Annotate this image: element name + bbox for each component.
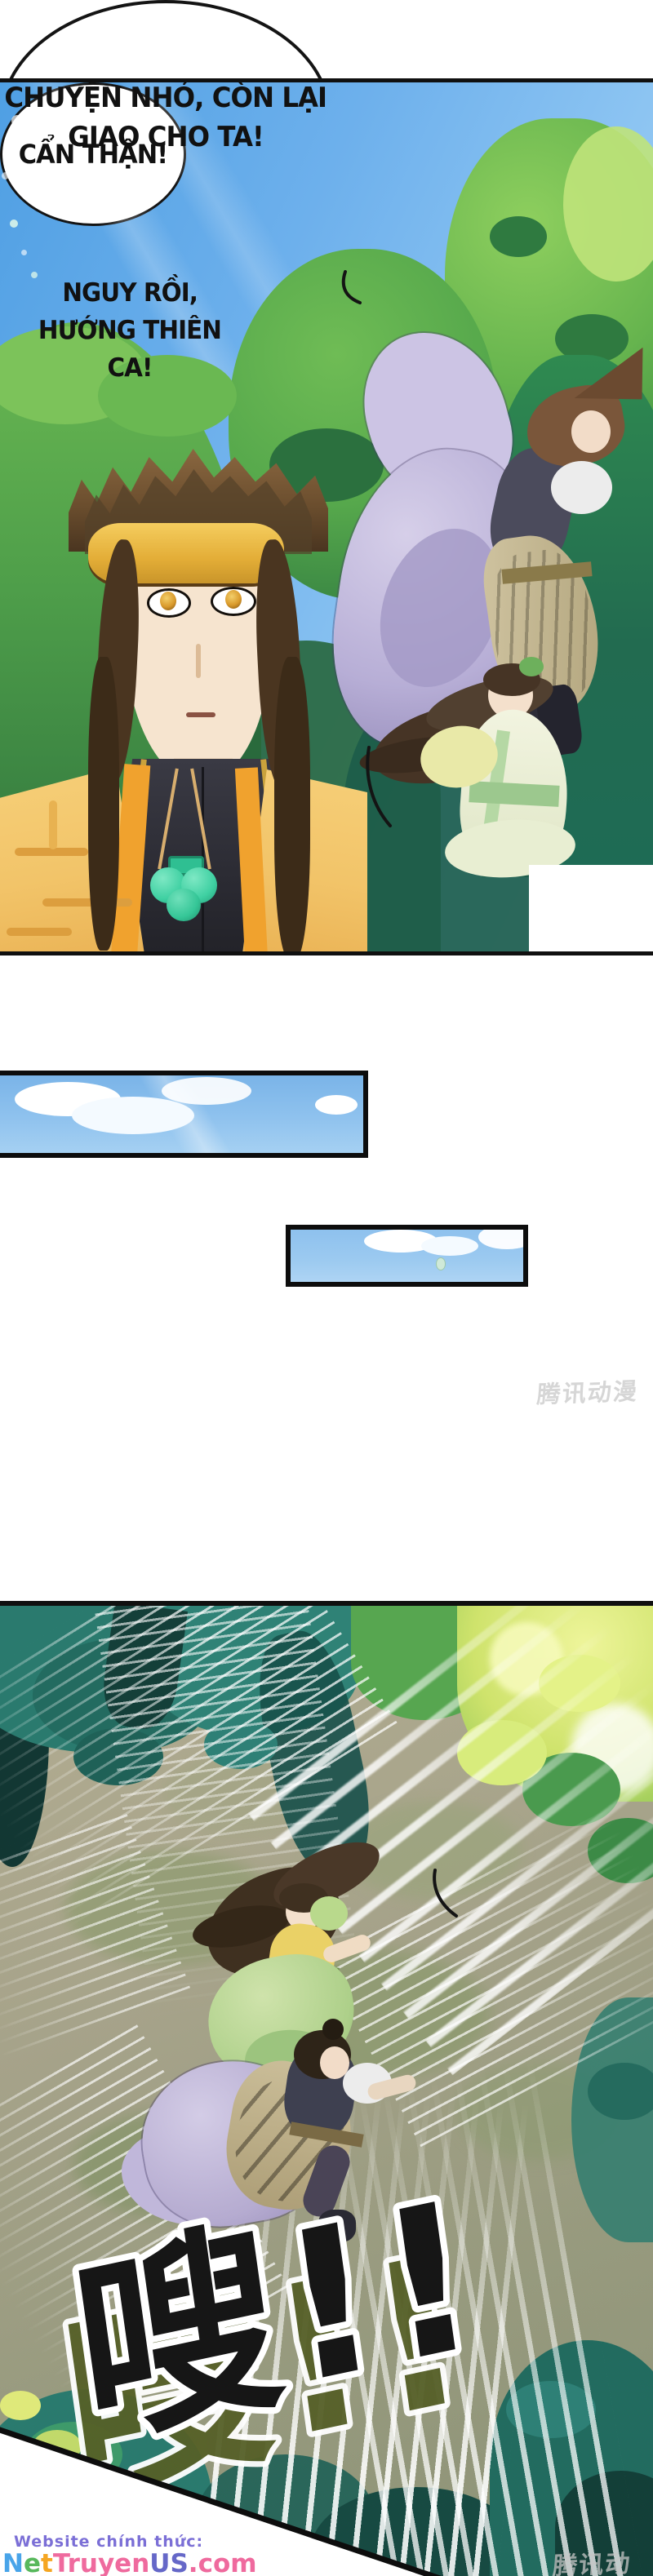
footer-site-letter: e — [114, 2549, 131, 2576]
footer-label: Website chính thức: — [14, 2533, 203, 2551]
green-woman-hairpiece — [519, 657, 544, 676]
cloud — [315, 1095, 358, 1115]
footer-site-letter: n — [131, 2549, 149, 2576]
hero-robe-pattern — [42, 898, 132, 907]
footer-site-letter: e — [24, 2549, 41, 2576]
sparkle — [2, 172, 9, 180]
hero-nose — [196, 644, 201, 678]
sky-inset-panel-2 — [286, 1225, 528, 1287]
footer-site-letter: r — [68, 2549, 80, 2576]
hero-iris-left — [160, 592, 176, 610]
hero-robe-pattern — [49, 800, 57, 849]
footer-site-letter: u — [80, 2549, 98, 2576]
footer-site-letter: U — [149, 2549, 170, 2576]
cloud — [478, 1225, 528, 1249]
footer-site-letter: N — [2, 2549, 24, 2576]
footer-site-letter: m — [230, 2549, 256, 2576]
footer-site-letter: t — [41, 2549, 53, 2576]
speech-bubble-3-line2: HƯỚNG THIÊN — [38, 312, 221, 349]
tencent-watermark: 腾讯动漫 — [535, 1372, 639, 1410]
speech-bubble-1-tail — [331, 270, 380, 311]
cloud — [421, 1236, 478, 1256]
footer-site-letter: c — [198, 2549, 213, 2576]
jade-pendant — [167, 889, 201, 921]
sparkle — [10, 219, 18, 228]
sparkle — [21, 250, 27, 255]
hero-back-hair-right — [274, 657, 310, 955]
hero-back-hair-left — [88, 657, 119, 951]
panel-white-cut — [529, 865, 653, 955]
hero-iris-right — [225, 590, 242, 609]
footer-site-letter: o — [213, 2549, 230, 2576]
footer-site-letter: . — [189, 2549, 198, 2576]
speech-bubble-3-line3: CA! — [107, 349, 152, 387]
speech-bubble-2-tail — [351, 744, 408, 830]
footer-site-letter: S — [170, 2549, 188, 2576]
footer-site-link[interactable]: NetTruyenUS.com — [2, 2549, 257, 2576]
speech-bubble-3-tail — [420, 1867, 469, 1919]
speech-bubble-2-line1: CHUYỆN NHỎ, CÒN LẠI — [5, 78, 327, 117]
cloud — [72, 1097, 194, 1134]
hero-mouth — [186, 712, 215, 717]
speech-bubble-3-line1: NGUY RỒI, — [62, 274, 198, 312]
running-woman-hood — [310, 1896, 348, 1931]
tencent-watermark-bottom: 腾讯动漫 — [549, 2543, 653, 2576]
hero-robe-pattern — [7, 928, 72, 936]
cloud — [162, 1077, 251, 1105]
side-foliage — [588, 2063, 653, 2120]
cloud-speck — [436, 1257, 446, 1270]
forest-panel: CẨN THẬN! — [0, 78, 653, 955]
foliage-shadow — [490, 216, 547, 257]
speech-bubble-2-line2: GIAO CHO TA! — [68, 117, 264, 157]
comic-page: CẨN THẬN! CHUYỆN NHỎ, CÒN LẠI GIAO CHO T… — [0, 0, 653, 2576]
sky-inset-panel-1 — [0, 1071, 368, 1158]
flying-figure-sleeve — [551, 461, 612, 514]
sparkle — [31, 272, 38, 278]
running-man-bun — [322, 2019, 344, 2040]
flying-figure-face — [571, 410, 611, 453]
footer-site-letter: T — [53, 2549, 68, 2576]
footer-site-letter: y — [98, 2549, 114, 2576]
